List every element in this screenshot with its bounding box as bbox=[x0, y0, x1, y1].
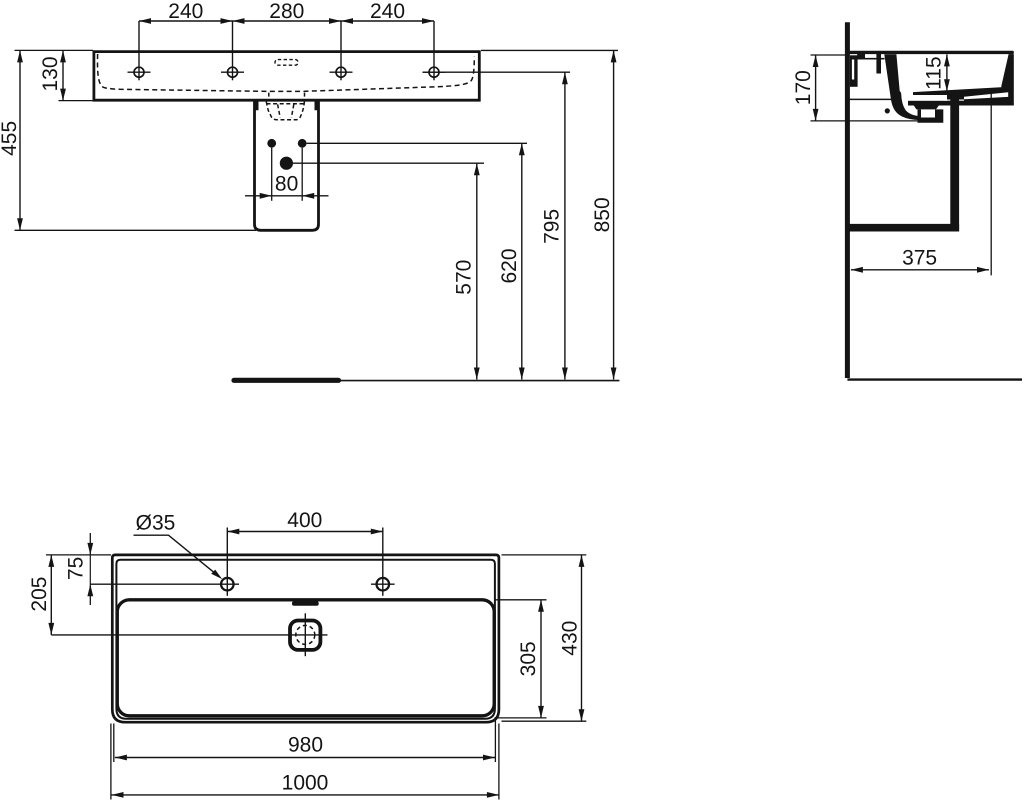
svg-text:240: 240 bbox=[370, 0, 405, 23]
svg-text:375: 375 bbox=[902, 246, 937, 269]
svg-text:205: 205 bbox=[28, 577, 51, 612]
svg-text:280: 280 bbox=[269, 0, 304, 23]
svg-text:1000: 1000 bbox=[282, 771, 329, 794]
svg-text:455: 455 bbox=[0, 121, 21, 156]
svg-text:80: 80 bbox=[275, 173, 298, 196]
svg-text:130: 130 bbox=[39, 56, 62, 91]
svg-text:Ø35: Ø35 bbox=[136, 511, 176, 534]
svg-text:75: 75 bbox=[65, 557, 88, 580]
svg-text:980: 980 bbox=[288, 734, 323, 757]
svg-text:305: 305 bbox=[517, 641, 540, 676]
svg-text:795: 795 bbox=[541, 209, 564, 244]
svg-text:430: 430 bbox=[559, 621, 582, 656]
svg-text:850: 850 bbox=[591, 197, 614, 232]
svg-text:620: 620 bbox=[498, 248, 521, 283]
svg-text:115: 115 bbox=[922, 56, 945, 89]
svg-text:570: 570 bbox=[452, 260, 475, 295]
svg-text:170: 170 bbox=[792, 70, 815, 105]
svg-text:400: 400 bbox=[287, 509, 322, 532]
svg-text:240: 240 bbox=[168, 0, 203, 23]
